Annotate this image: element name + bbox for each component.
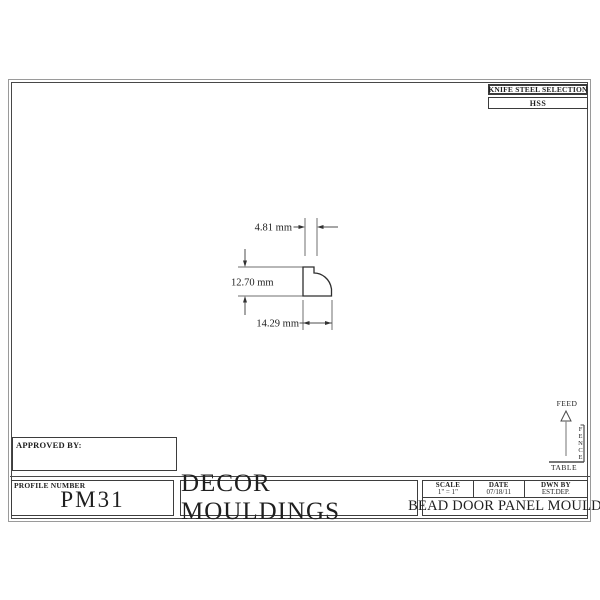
drawn-by-cell: DWN BY EST.DEP. xyxy=(524,481,587,497)
knife-steel-selection-label: KNIFE STEEL SELECTION xyxy=(488,85,587,94)
knife-steel-value-box: HSS xyxy=(488,97,588,109)
arrowhead-left-icon xyxy=(317,225,324,229)
moulding-profile-outline xyxy=(303,267,332,296)
moulding-profile-drawing: 4.81 mm 12.70 mm 14.29 mm xyxy=(230,205,362,340)
company-name: DECOR MOULDINGS xyxy=(181,470,417,526)
company-name-box: DECOR MOULDINGS xyxy=(180,480,418,516)
machine-orientation-diagram: FEED FENCE TABLE xyxy=(545,396,593,476)
drawing-sheet: KNIFE STEEL SELECTION HSS 4.81 mm 12.70 … xyxy=(0,0,600,600)
feed-arrowhead-icon xyxy=(561,411,571,421)
arrowhead-left-icon xyxy=(303,321,310,325)
knife-steel-value: HSS xyxy=(530,99,547,108)
date-value: 07/18/11 xyxy=(486,489,511,497)
dimension-height-label: 12.70 mm xyxy=(231,278,274,289)
arrowhead-down-icon xyxy=(243,261,247,268)
drawing-info-box: SCALE 1" = 1" DATE 07/18/11 DWN BY EST.D… xyxy=(422,480,588,516)
table-label: TABLE xyxy=(551,463,577,472)
fence-label: FENCE xyxy=(577,426,584,461)
arrowhead-right-icon xyxy=(299,225,306,229)
profile-number-box: PROFILE NUMBER PM31 xyxy=(11,480,174,516)
drawn-by-value: EST.DEP. xyxy=(542,489,570,497)
knife-steel-selection-box: KNIFE STEEL SELECTION xyxy=(488,84,588,95)
approved-by-box: APPROVED BY: xyxy=(12,437,177,471)
arrowhead-up-icon xyxy=(243,296,247,303)
dimension-bottom-width-label: 14.29 mm xyxy=(256,319,299,330)
profile-number-value: PM31 xyxy=(12,488,173,512)
scale-cell: SCALE 1" = 1" xyxy=(423,481,473,497)
scale-value: 1" = 1" xyxy=(438,489,458,497)
date-cell: DATE 07/18/11 xyxy=(473,481,524,497)
drawing-title: BEAD DOOR PANEL MOULD xyxy=(423,498,587,515)
drawing-info-header-row: SCALE 1" = 1" DATE 07/18/11 DWN BY EST.D… xyxy=(423,481,587,498)
arrowhead-right-icon xyxy=(325,321,332,325)
approved-by-label: APPROVED BY: xyxy=(16,440,82,450)
dimension-top-width-label: 4.81 mm xyxy=(255,223,292,234)
